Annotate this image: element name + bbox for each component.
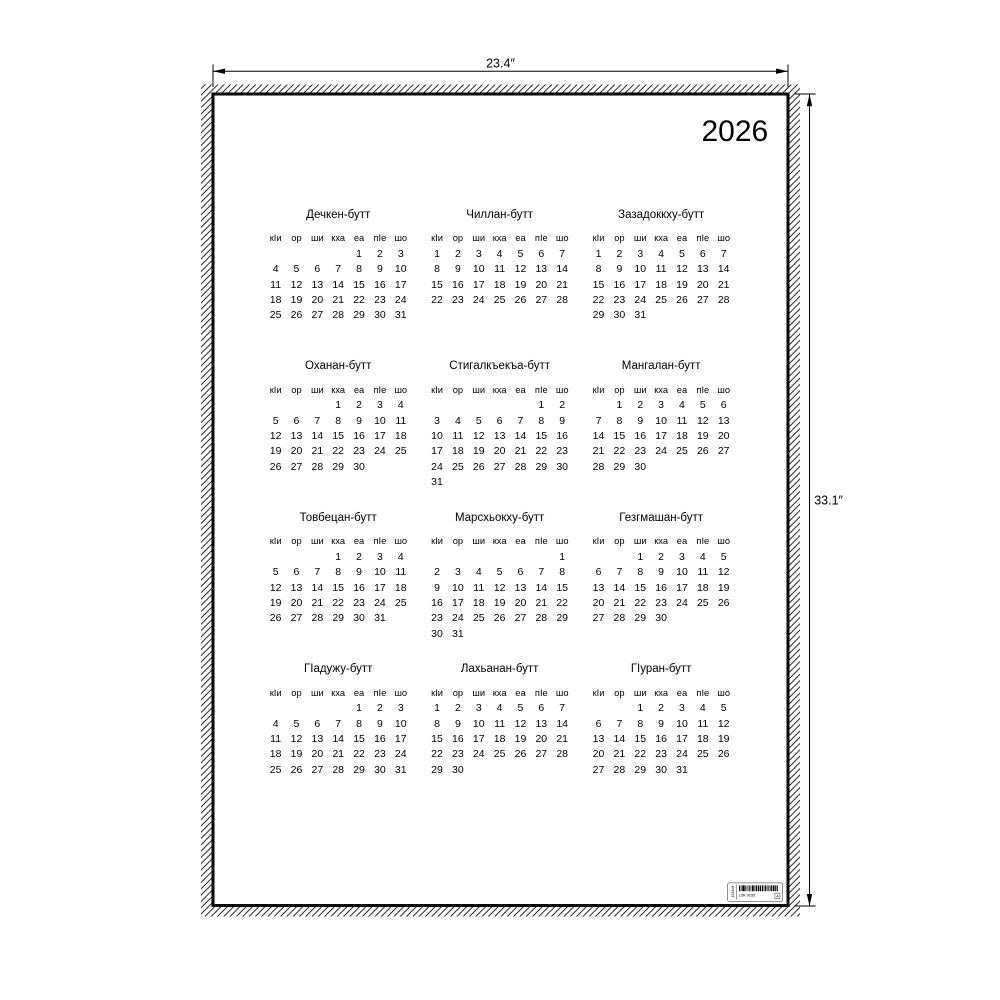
- svg-text:1614off: 1614off: [731, 886, 735, 898]
- svg-text:A: A: [776, 894, 779, 899]
- svg-text:23.4″: 23.4″: [486, 57, 515, 71]
- svg-text:L5R 9C55: L5R 9C55: [739, 893, 755, 897]
- svg-text:33.1″: 33.1″: [814, 494, 843, 508]
